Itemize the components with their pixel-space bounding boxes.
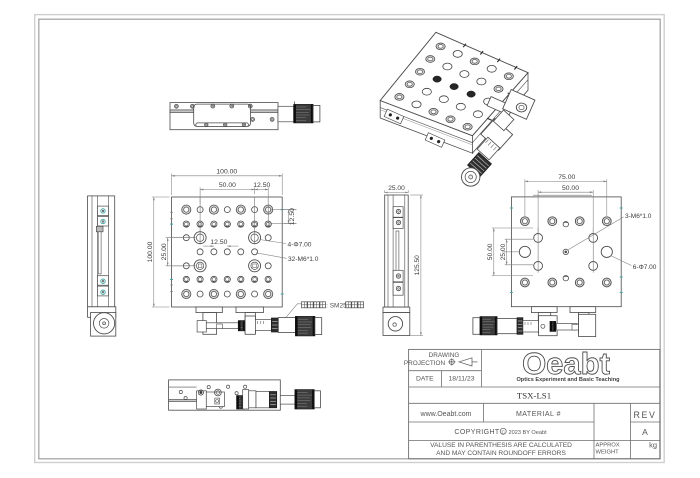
- svg-text:18/11/23: 18/11/23: [449, 376, 475, 383]
- svg-text:PROJECTION: PROJECTION: [404, 360, 446, 367]
- svg-text:50.00: 50.00: [562, 185, 579, 192]
- svg-text:www.Oeabt.com: www.Oeabt.com: [420, 411, 472, 418]
- svg-text:DATE: DATE: [416, 376, 434, 383]
- svg-text:REV: REV: [634, 410, 657, 420]
- svg-text:4-Φ7.00: 4-Φ7.00: [288, 242, 312, 249]
- svg-text:50.00: 50.00: [487, 243, 494, 260]
- svg-text:VALUSE IN PARENTHESIS ARE CALC: VALUSE IN PARENTHESIS ARE CALCULATED: [430, 442, 572, 449]
- svg-text:: SM25: : SM25: [326, 302, 347, 309]
- svg-text:100.00: 100.00: [147, 241, 154, 262]
- svg-text:75.00: 75.00: [558, 174, 575, 181]
- svg-text:50.00: 50.00: [219, 182, 236, 189]
- svg-text:25.00: 25.00: [161, 243, 168, 260]
- svg-text:6-Φ7.00: 6-Φ7.00: [633, 264, 657, 271]
- svg-text:APPROX: APPROX: [596, 442, 620, 448]
- svg-text:3-M6*1.0: 3-M6*1.0: [625, 213, 652, 220]
- svg-text:kg: kg: [649, 441, 657, 450]
- svg-text:MATERIAL #: MATERIAL #: [516, 411, 561, 418]
- svg-text:COPYRIGHT: COPYRIGHT: [454, 429, 500, 436]
- svg-text:Oeabt: Oeabt: [522, 346, 610, 381]
- svg-text:TSX-LS1: TSX-LS1: [517, 390, 551, 400]
- svg-text:12.50: 12.50: [253, 182, 270, 189]
- svg-text:AND MAY CONTAIN ROUNDOFF ERROR: AND MAY CONTAIN ROUNDOFF ERRORS: [436, 450, 566, 457]
- svg-text:Optics Experiment and Basic Te: Optics Experiment and Basic Teaching: [516, 377, 620, 383]
- svg-text:12.50: 12.50: [289, 208, 296, 225]
- svg-text:2023 BY Oeabt: 2023 BY Oeabt: [509, 430, 548, 436]
- svg-text:125.50: 125.50: [414, 255, 421, 276]
- svg-text:WEIGHT: WEIGHT: [596, 449, 620, 455]
- svg-text:100.00: 100.00: [216, 168, 237, 175]
- svg-text:12.50: 12.50: [210, 239, 227, 246]
- svg-text:32-M6*1.0: 32-M6*1.0: [288, 256, 319, 263]
- svg-text:25.00: 25.00: [500, 243, 507, 260]
- svg-text:DRAWING: DRAWING: [429, 352, 460, 359]
- svg-text:A: A: [642, 427, 648, 437]
- svg-text:25.00: 25.00: [388, 185, 405, 192]
